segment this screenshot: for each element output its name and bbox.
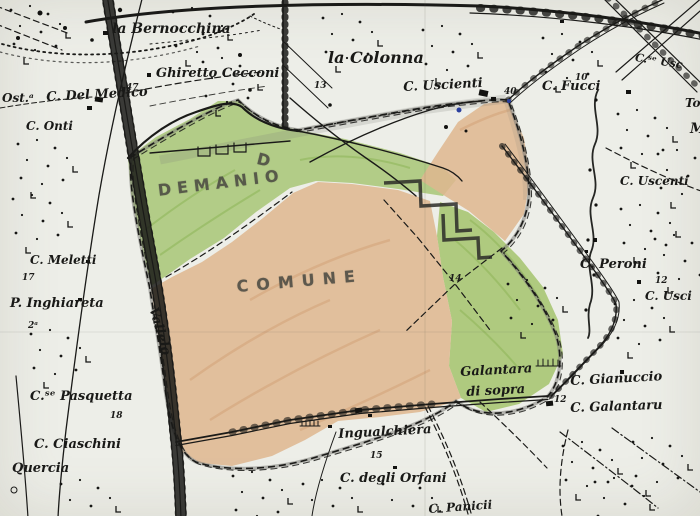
stream [588, 90, 598, 338]
scanned-cadastral-map: la BernocchinaGhiretto Cecconila Colonna… [0, 0, 700, 516]
map-artwork [0, 0, 700, 516]
